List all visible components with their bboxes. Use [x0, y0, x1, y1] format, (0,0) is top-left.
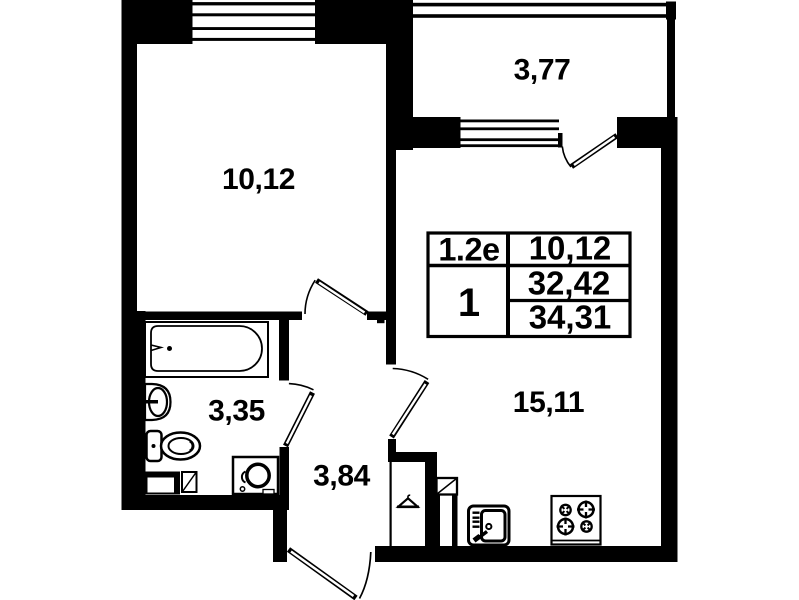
svg-text:3,35: 3,35 [208, 395, 265, 428]
svg-text:1.2e: 1.2e [438, 232, 499, 268]
svg-text:3,84: 3,84 [313, 460, 371, 493]
svg-text:34,31: 34,31 [529, 299, 612, 336]
svg-text:1: 1 [458, 281, 480, 325]
svg-text:10,12: 10,12 [222, 163, 295, 196]
svg-text:15,11: 15,11 [513, 386, 584, 419]
svg-text:32,42: 32,42 [528, 265, 611, 302]
svg-text:10,12: 10,12 [529, 230, 612, 267]
svg-text:3,77: 3,77 [514, 54, 571, 87]
